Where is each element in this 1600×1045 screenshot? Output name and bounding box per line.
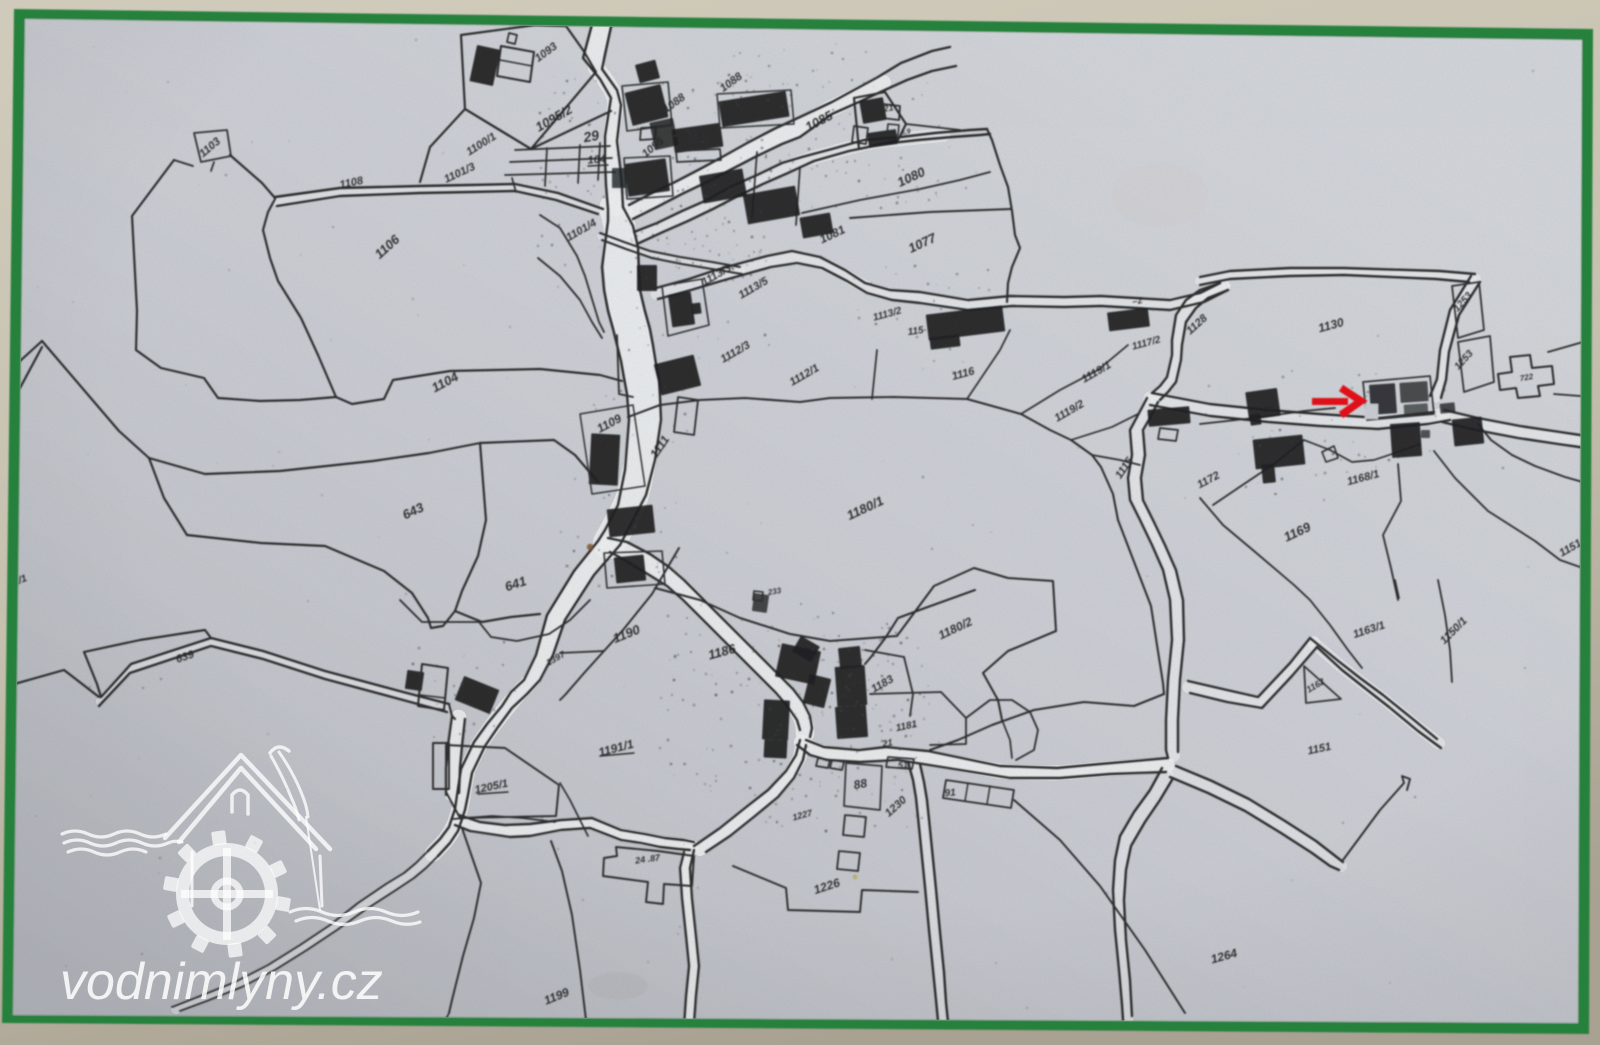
svg-text:vodnimlyny.cz: vodnimlyny.cz bbox=[60, 953, 383, 1011]
